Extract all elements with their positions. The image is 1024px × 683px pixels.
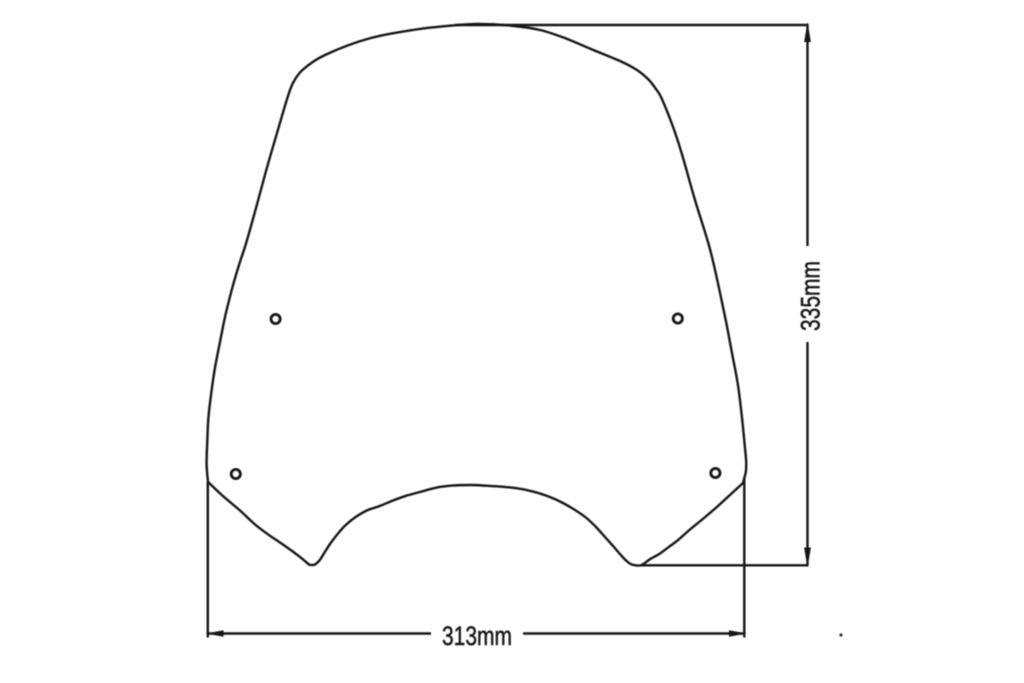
svg-text:335mm: 335mm xyxy=(795,261,825,331)
svg-text:313mm: 313mm xyxy=(442,621,512,651)
